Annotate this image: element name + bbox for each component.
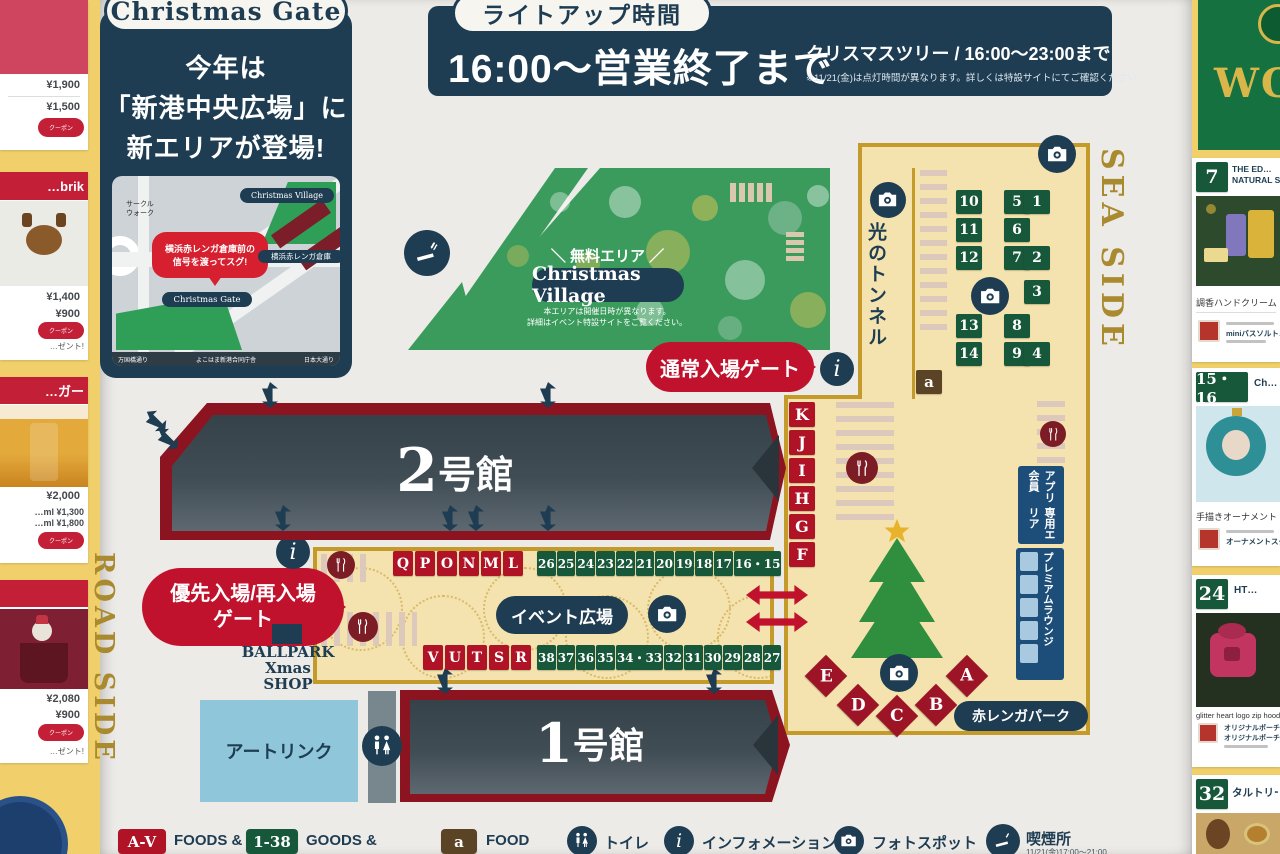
booth-number: 21 xyxy=(636,551,655,576)
bubble-tail xyxy=(208,276,222,293)
booth-number: 8 xyxy=(1004,314,1030,338)
booth-number: 23 xyxy=(596,551,615,576)
menu-card: …brik ¥1,400 ¥900 クーポン …ゼント! xyxy=(0,172,88,360)
santa-hat xyxy=(36,615,48,624)
shop-logo xyxy=(1198,723,1218,743)
booth-number: 18 xyxy=(695,551,714,576)
price: ¥2,000 xyxy=(0,490,80,502)
shop-title: Ch… xyxy=(1254,378,1277,389)
access-bubble: 横浜赤レンガ倉庫前の 信号を渡ってスグ! xyxy=(152,232,268,278)
booth-number: 20 xyxy=(655,551,674,576)
warehouse-map-pill: 横浜赤レンガ倉庫 xyxy=(258,250,340,263)
hall1-label: 1 号館 xyxy=(480,712,700,774)
christmas-tree xyxy=(843,518,955,672)
legend-foods-box: A-V xyxy=(118,829,166,854)
headline-line: 今年は xyxy=(100,48,352,88)
booth-number: 30 xyxy=(704,645,723,670)
booth-number: 2 xyxy=(1024,246,1050,270)
booth-letter: C xyxy=(890,706,904,726)
booth-letter: O xyxy=(437,551,457,576)
label-line: サークル xyxy=(126,200,154,209)
photo-spot-camera-icon xyxy=(971,277,1009,315)
booth-number: 19 xyxy=(675,551,694,576)
gate-label: ゲート xyxy=(213,607,273,633)
booth-number: 32 xyxy=(664,645,683,670)
shop-title: THE ED… NATURAL S… xyxy=(1232,164,1280,186)
right-menu-panel: WO 7 THE ED… NATURAL S… 調香ハンドクリーム miniバス… xyxy=(1192,0,1280,854)
gate-headline: 今年は 「新港中央広場」に 新エリアが登場! xyxy=(100,48,352,168)
tart xyxy=(1244,823,1270,845)
hall-number: 2 xyxy=(396,436,438,506)
booth-number: 36 xyxy=(576,645,595,670)
shop-header: …brik xyxy=(0,172,88,200)
smoking-icon xyxy=(404,230,450,276)
divider xyxy=(1196,312,1276,313)
booth-number: 13 xyxy=(956,314,982,338)
shop-card: 24 HT… glitter heart logo zip hood… オリジナ… xyxy=(1192,575,1280,767)
premium-label: プレミアムラウンジ xyxy=(1041,552,1056,676)
tin-purple xyxy=(1226,214,1246,256)
street-labels: 万国橋通り よこはま新港合同庁舎 日本大通り xyxy=(112,352,340,366)
world-header-panel: WO xyxy=(1198,0,1280,150)
booth-number: 27 xyxy=(763,645,782,670)
hall-number: 1 xyxy=(535,711,573,775)
legend-smoking-label: 喫煙所 xyxy=(1026,828,1071,849)
title-line: THE ED… xyxy=(1232,164,1280,175)
street-label: 日本大通り xyxy=(304,355,334,364)
booth-a: a xyxy=(916,370,942,394)
booth-number: 4 xyxy=(1024,342,1050,366)
food-photo xyxy=(0,201,88,286)
seat xyxy=(1020,598,1038,617)
booth-row-VR: VUTSR xyxy=(423,645,531,670)
booth-letter: J xyxy=(789,430,815,455)
booth-number: 16・15 xyxy=(734,551,781,576)
price: ¥2,080 xyxy=(0,693,80,705)
free-area-label: ＼ 無料エリア ／ xyxy=(520,246,695,264)
sea-side-label: SEA SIDE xyxy=(1094,148,1129,458)
shop-card: 15・16 Ch… 手描きオーナメント オーナメントスタン… xyxy=(1192,368,1280,566)
label-line: アプリ会員 xyxy=(1025,470,1057,503)
title-line: NATURAL S… xyxy=(1232,175,1280,186)
seat xyxy=(1020,575,1038,594)
shop-logo xyxy=(1198,320,1220,342)
coupon-badge: クーポン xyxy=(38,532,84,549)
product-photo xyxy=(1196,613,1280,707)
event-plaza-pill: イベント広場 xyxy=(496,596,628,634)
seat xyxy=(1020,644,1038,663)
booth-letter: M xyxy=(481,551,501,576)
booth-letter: N xyxy=(459,551,479,576)
product-caption: glitter heart logo zip hood… xyxy=(1196,711,1280,720)
cup xyxy=(20,643,68,683)
booth-letter: E xyxy=(820,666,833,686)
booth-number: 1 xyxy=(1024,190,1050,214)
art-rink-area: アートリンク xyxy=(200,700,358,802)
lightup-main-time: 16:00〜営業終了まで xyxy=(448,38,833,94)
road-side-label: ROAD SIDE xyxy=(88,552,119,802)
size-price: …ml ¥1,300 xyxy=(0,507,84,517)
normal-entrance-gate-badge: 通常入場ゲート xyxy=(646,342,814,392)
product-photo xyxy=(1196,406,1280,502)
booth-number: 28 xyxy=(743,645,762,670)
lightup-title-pill: ライトアップ時間 xyxy=(452,0,712,34)
booth-letter: H xyxy=(789,486,815,511)
gate-map-pill: Christmas Gate xyxy=(162,292,252,307)
hall-suffix: 号館 xyxy=(573,717,645,769)
street-label: 万国橋通り xyxy=(118,355,148,364)
headline-line: 新エリアが登場! xyxy=(100,128,352,168)
village-name-pill: Christmas Village xyxy=(532,268,684,302)
price: ¥1,500 xyxy=(0,101,80,113)
hall2-label: 2 号館 xyxy=(330,438,580,504)
gate-label: 通常入場ゲート xyxy=(660,353,800,382)
booth-number: 22 xyxy=(616,551,635,576)
shop-logo xyxy=(1198,528,1220,550)
tunnel-hatch xyxy=(920,170,947,338)
logo-text: オーナメントスタン… xyxy=(1226,536,1280,547)
booth-number: 26 xyxy=(537,551,556,576)
booth-number: 35 xyxy=(596,645,615,670)
booth-number: 17 xyxy=(714,551,733,576)
booth-letter: U xyxy=(445,645,465,670)
ballpark-shop-label: BALLPARK Xmas SHOP xyxy=(240,644,336,692)
booth-row-QL: QPONML xyxy=(393,551,523,576)
booth-number: 32 xyxy=(1196,779,1228,809)
ornament-cap xyxy=(1232,408,1242,416)
dining-icon xyxy=(1040,421,1066,447)
note: …ゼント! xyxy=(0,746,84,757)
legend-goods-box: 1-38 xyxy=(246,829,298,854)
ballpark-shop-marker xyxy=(272,624,302,644)
glass-highlight xyxy=(30,423,58,481)
premium-lounge-area: プレミアムラウンジ xyxy=(1016,548,1064,680)
price: ¥900 xyxy=(0,709,80,721)
menu-card: ¥1,900 ¥1,500 クーポン xyxy=(0,0,88,150)
booth-number: 3 xyxy=(1024,280,1050,304)
booth-number: 6 xyxy=(1004,218,1030,242)
world-header-text: WO xyxy=(1214,60,1280,107)
logo-text: オリジナルポーチ&ス… xyxy=(1224,733,1280,743)
street-label: よこはま新港合同庁舎 xyxy=(196,355,256,364)
photo-spot-camera-icon xyxy=(880,654,918,692)
priority-entrance-gate-badge: 優先入場/再入場 ゲート xyxy=(142,568,344,646)
product-photo xyxy=(1196,813,1280,854)
fine-print xyxy=(1224,745,1268,748)
booth-column-KF: KJIHGF xyxy=(789,402,815,567)
info-icon: i xyxy=(664,826,694,854)
booth-letter: V xyxy=(423,645,443,670)
bubble-line: 横浜赤レンガ倉庫前の xyxy=(165,242,255,255)
booth-number: 29 xyxy=(723,645,742,670)
booth-number: 7 xyxy=(1196,162,1228,192)
price: ¥1,400 xyxy=(0,291,80,303)
booth-number: 14 xyxy=(956,342,982,366)
booth-row-top-numbers: 2625242322212019181716・15 xyxy=(537,551,781,576)
bokeh xyxy=(1206,204,1216,214)
seat xyxy=(1020,552,1038,571)
tunnel-label: 光のトンネル xyxy=(862,222,889,362)
photo-spot-camera-icon xyxy=(648,595,686,633)
booth-letter: R xyxy=(511,645,531,670)
shop-header xyxy=(0,580,88,607)
coupon-badge: クーポン xyxy=(38,322,84,339)
dining-icon xyxy=(327,551,355,579)
legend-toilet-label: トイレ xyxy=(604,832,649,853)
photo-spot-camera-icon xyxy=(834,826,864,854)
booth-letter: L xyxy=(503,551,523,576)
booth-number: 34・33 xyxy=(616,645,663,670)
lightup-tree-time: クリスマスツリー / 16:00〜23:00まで xyxy=(806,40,1111,66)
size-price: …ml ¥1,800 xyxy=(0,518,84,528)
gate-title-pill: Christmas Gate xyxy=(104,0,348,32)
gate-label: 優先入場/再入場 xyxy=(170,581,316,607)
angel xyxy=(1222,430,1250,460)
booth-letter: Q xyxy=(393,551,413,576)
tunnel-lane-line xyxy=(912,168,915,399)
village-note: 本エリアは開催日時が異なります。 xyxy=(512,306,702,317)
booth-number: 15・16 xyxy=(1196,372,1248,402)
legend-food-box: a xyxy=(441,829,477,854)
booth-letter: T xyxy=(467,645,487,670)
circle-walk-label: サークル ウォーク xyxy=(126,200,154,218)
fine-print xyxy=(1226,322,1274,325)
wreath-logo xyxy=(1258,4,1280,44)
legend-food-label: FOOD xyxy=(486,832,529,849)
toilet-icon xyxy=(362,726,402,766)
shop-card: 32 タルトリー… xyxy=(1192,775,1280,854)
soap xyxy=(1204,248,1228,262)
booth-letter: D xyxy=(851,695,866,715)
shop-header: …ガー xyxy=(0,377,88,404)
booth-number: 38 xyxy=(537,645,556,670)
label-line: Xmas SHOP xyxy=(240,660,336,692)
booth-letter: F xyxy=(789,542,815,567)
menu-card: ¥2,080 ¥900 クーポン …ゼント! xyxy=(0,580,88,763)
shop-title: HT… xyxy=(1234,585,1257,596)
gold-border-segment xyxy=(784,395,862,399)
bubble-line: 信号を渡ってスグ! xyxy=(173,255,248,268)
pinecone xyxy=(1206,819,1230,849)
booth-letter: A xyxy=(960,666,973,686)
food-photo xyxy=(0,0,88,74)
market-map-board: ¥1,900 ¥1,500 クーポン …brik ¥1,400 ¥900 クーポ… xyxy=(0,0,1280,854)
headline-line: 「新港中央広場」に xyxy=(100,88,352,128)
dining-icon xyxy=(348,612,378,642)
toilet-icon xyxy=(567,826,597,854)
product-caption: 調香ハンドクリーム xyxy=(1196,296,1280,309)
booth-row-bottom-numbers: 3837363534・33323130292827 xyxy=(537,645,781,670)
drink-photo xyxy=(0,609,88,689)
booth-number: 11 xyxy=(956,218,982,242)
booth-number: 24 xyxy=(576,551,595,576)
product-photo xyxy=(1196,196,1280,286)
booth-letter: G xyxy=(789,514,815,539)
booth-number: 25 xyxy=(557,551,576,576)
price: ¥900 xyxy=(0,308,80,320)
coupon-badge: クーポン xyxy=(38,724,84,741)
booth-number: 31 xyxy=(684,645,703,670)
booth-number: 24 xyxy=(1196,579,1228,609)
coupon-badge: クーポン xyxy=(38,118,84,137)
tin-yellow xyxy=(1248,210,1274,258)
santa-figure xyxy=(32,621,52,641)
booth-number: 12 xyxy=(956,246,982,270)
booth-letter: B xyxy=(929,695,943,715)
hood xyxy=(1218,623,1246,639)
access-minimap: サークル ウォーク Christmas Village 横浜赤レンガ倉庫前の 信… xyxy=(112,176,340,366)
lightup-note: ※11/21(金)は点灯時間が異なります。詳しくは特設サイトにてご確認ください。 xyxy=(806,70,1146,84)
antler xyxy=(56,213,66,227)
legend-goods-label: GOODS & xyxy=(306,832,377,849)
left-menu-panel: ¥1,900 ¥1,500 クーポン …brik ¥1,400 ¥900 クーポ… xyxy=(0,0,100,854)
booth-number: 37 xyxy=(557,645,576,670)
legend-info-label: インフォメーション xyxy=(702,832,836,853)
label-line: ウォーク xyxy=(126,209,154,218)
village-map-pill: Christmas Village xyxy=(240,188,334,203)
lounge-seats xyxy=(1020,552,1038,676)
seat xyxy=(1020,621,1038,640)
booth-number: 10 xyxy=(956,190,982,214)
app-member-area: アプリ会員 専用エリア xyxy=(1018,466,1064,544)
seaside-booth-grid: 1051116127231381494 xyxy=(956,190,1064,366)
menu-card: …ガー ¥2,000 …ml ¥1,300 …ml ¥1,800 クーポン xyxy=(0,377,88,563)
booth-letter: S xyxy=(489,645,509,670)
product-caption: 手描きオーナメント xyxy=(1196,510,1280,523)
antler xyxy=(22,213,32,227)
smoking-icon xyxy=(986,824,1020,854)
price: ¥1,900 xyxy=(0,79,80,91)
village-note: 詳細はイベント特設サイトをご覧ください。 xyxy=(502,317,712,328)
shop-card: 7 THE ED… NATURAL S… 調香ハンドクリーム miniバスソルト… xyxy=(1192,158,1280,362)
label-line: 専用エリア xyxy=(1025,507,1057,540)
booth-letter: K xyxy=(789,402,815,427)
legend-smoking-note: 11/21(金)17:00〜21:00 xyxy=(1026,847,1107,854)
photo-spot-camera-icon xyxy=(1038,135,1076,173)
shop-title: タルトリー… xyxy=(1232,785,1278,800)
booth-letter: I xyxy=(789,458,815,483)
legend-foods-label: FOODS & xyxy=(174,832,242,849)
label-line: BALLPARK xyxy=(240,644,336,660)
heart-logo xyxy=(1224,647,1240,661)
booth-letter: P xyxy=(415,551,435,576)
fine-print xyxy=(1226,340,1266,343)
fine-print xyxy=(1226,530,1274,533)
beer-photo xyxy=(0,405,88,487)
logo-text: miniバスソルト… xyxy=(1226,328,1280,339)
legend-photo-label: フォトスポット xyxy=(872,832,977,853)
hall-suffix: 号館 xyxy=(438,444,514,499)
blue-plate-photo xyxy=(0,796,68,854)
info-icon: i xyxy=(820,352,854,386)
dining-icon xyxy=(846,452,878,484)
logo-text: オリジナルポーチ、 xyxy=(1224,723,1280,733)
reindeer-cake xyxy=(26,225,62,255)
red-brick-park-pill: 赤レンガパーク xyxy=(954,701,1088,731)
photo-spot-camera-icon xyxy=(870,182,906,218)
note: …ゼント! xyxy=(0,341,84,352)
divider xyxy=(8,96,80,97)
